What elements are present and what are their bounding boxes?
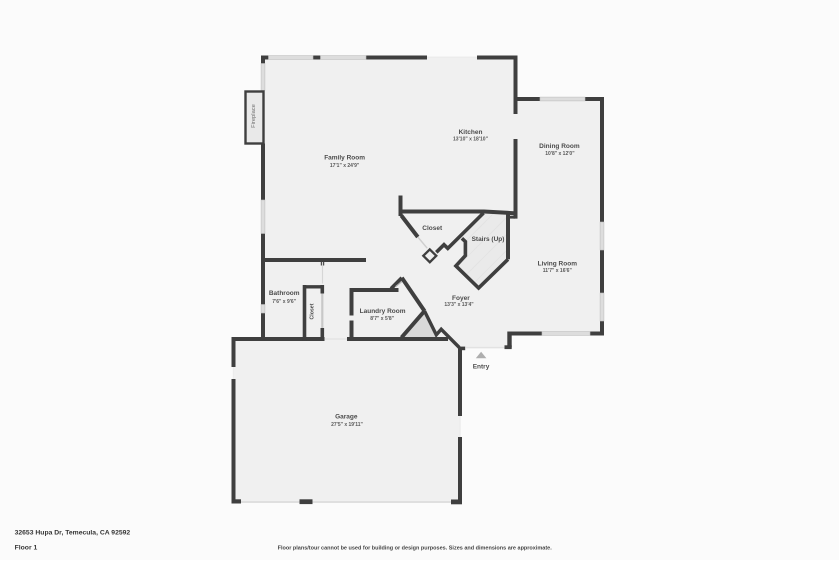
svg-text:Kitchen: Kitchen bbox=[459, 129, 483, 136]
svg-text:Floor 1: Floor 1 bbox=[15, 544, 38, 551]
svg-text:17'1" x 24'9": 17'1" x 24'9" bbox=[330, 163, 360, 169]
svg-text:Laundry Room: Laundry Room bbox=[360, 308, 406, 315]
svg-text:Closet: Closet bbox=[310, 303, 316, 319]
svg-text:32653 Hupa Dr, Temecula, CA 92: 32653 Hupa Dr, Temecula, CA 92592 bbox=[15, 530, 131, 537]
svg-text:Entry: Entry bbox=[473, 363, 490, 370]
svg-text:Garage: Garage bbox=[335, 413, 358, 420]
svg-text:11'7" x 16'6": 11'7" x 16'6" bbox=[543, 268, 573, 274]
svg-text:Bathroom: Bathroom bbox=[269, 290, 300, 297]
svg-text:10'8" x 12'0": 10'8" x 12'0" bbox=[545, 151, 575, 157]
svg-text:7'6" x 9'6": 7'6" x 9'6" bbox=[272, 299, 296, 305]
svg-text:Dining Room: Dining Room bbox=[539, 143, 580, 150]
svg-text:13'10" x 18'10": 13'10" x 18'10" bbox=[453, 136, 489, 142]
svg-text:Closet: Closet bbox=[422, 225, 443, 232]
svg-text:Living Room: Living Room bbox=[538, 260, 578, 267]
svg-text:13'3" x 13'4": 13'3" x 13'4" bbox=[444, 302, 474, 308]
svg-text:27'5" x 19'11": 27'5" x 19'11" bbox=[331, 422, 363, 428]
svg-text:Stairs (Up): Stairs (Up) bbox=[472, 236, 505, 243]
svg-text:Fireplace: Fireplace bbox=[251, 104, 257, 128]
svg-text:Floor plans/tour cannot be use: Floor plans/tour cannot be used for buil… bbox=[278, 546, 553, 552]
svg-text:Family Room: Family Room bbox=[324, 155, 365, 162]
svg-text:8'7" x 5'8": 8'7" x 5'8" bbox=[370, 316, 394, 322]
